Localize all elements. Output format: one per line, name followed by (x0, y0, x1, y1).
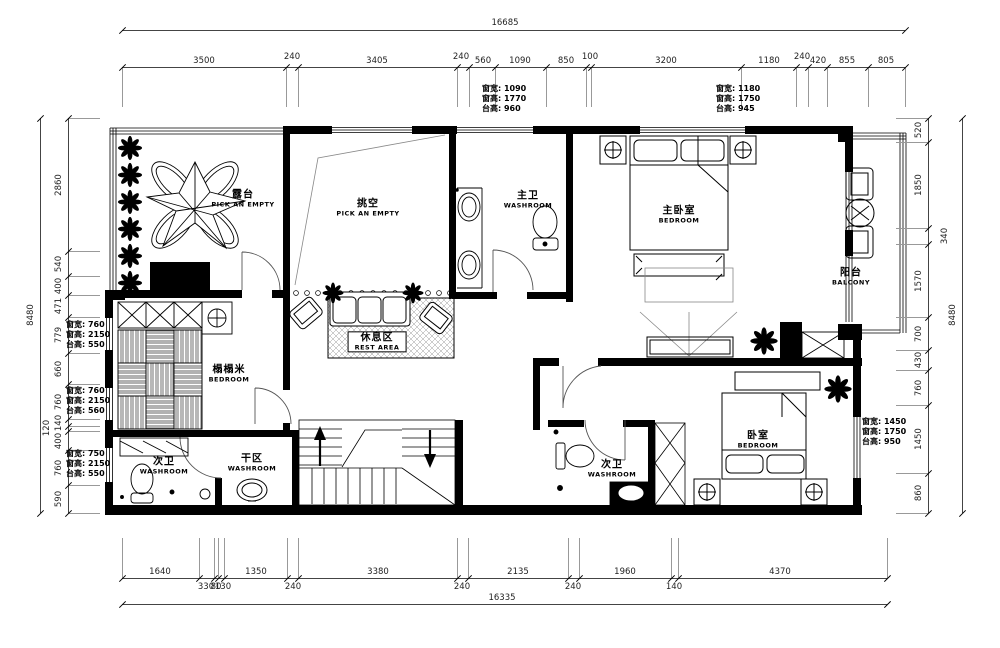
dim-top-segments-ext (827, 67, 828, 107)
room-name-en: REST AREA (355, 344, 400, 351)
dim-left-segments-ext (68, 485, 100, 486)
closet-hatch (655, 423, 685, 505)
dim-top-segments-ext (591, 67, 592, 107)
room-label: 卧室BEDROOM (738, 431, 779, 448)
room-name-cn: 卧室 (738, 431, 779, 442)
dim-top-segments-ext (122, 67, 123, 107)
dim-left-segments-ext (68, 419, 100, 420)
dim-label: 1180 (758, 56, 780, 66)
dim-label: 100 (582, 52, 598, 62)
room-name-cn: 干区 (228, 454, 277, 465)
dim-top-segments-ext (868, 67, 869, 107)
dim-label: 130 (215, 582, 231, 592)
room-label: 主卫WASHROOM (504, 191, 553, 208)
dry-area-sink (237, 479, 267, 501)
room-label: 干区WASHROOM (228, 454, 277, 471)
window-spec-line: 台高: 950 (862, 437, 906, 447)
room-name-cn: 挑空 (336, 199, 399, 210)
window-lines (107, 128, 861, 483)
dim-top-total-line (122, 30, 905, 31)
dim-top-segments-ext (286, 67, 287, 107)
window-spec: 窗宽: 1090窗高: 1770台高: 960 (482, 84, 526, 114)
dim-label: 4370 (769, 567, 791, 577)
window-spec-line: 窗宽: 760 (66, 320, 110, 330)
dim-label: 760 (914, 380, 924, 396)
dim-bottom-segments-ext (568, 538, 569, 578)
dim-label: 140 (666, 582, 682, 592)
dim-label: 400 (54, 433, 64, 449)
dim-bottom-segments-ext (122, 538, 123, 578)
dim-right-segments-ext (896, 142, 928, 143)
dim-label: 590 (54, 491, 64, 507)
window-spec-line: 窗高: 1770 (482, 94, 526, 104)
dim-label: 860 (914, 485, 924, 501)
stairs-down-arrowhead (424, 454, 436, 468)
dim-label: 1450 (914, 428, 924, 450)
room-name-en: WASHROOM (228, 465, 277, 472)
dim-top-segments-ext (586, 67, 587, 107)
dim-label: 1960 (614, 567, 636, 577)
dim-label: 240 (454, 582, 470, 592)
dim-label: 779 (54, 327, 64, 343)
room-label: 挑空PICK AN EMPTY (336, 199, 399, 216)
dim-label: 240 (285, 582, 301, 592)
dim-left-segments-ext (68, 431, 100, 432)
dim-label: 471 (54, 298, 64, 314)
dim-label: 760 (54, 460, 64, 476)
dim-bottom-segments-ext (678, 538, 679, 578)
dim-left-segments-ext (68, 317, 100, 318)
window-spec-line: 窗高: 1750 (716, 94, 760, 104)
dim-label: 760 (54, 394, 64, 410)
dim-right-segments-ext (896, 118, 928, 119)
room-label: 露台PICK AN EMPTY (211, 190, 274, 207)
walls (105, 126, 862, 515)
window-spec-line: 窗宽: 1090 (482, 84, 526, 94)
dim-label: 240 (565, 582, 581, 592)
window-spec-line: 台高: 945 (716, 104, 760, 114)
dim-top-segments-ext (457, 67, 458, 107)
window-spec-line: 窗高: 2150 (66, 330, 110, 340)
dim-right-segments-ext (896, 350, 928, 351)
room-name-cn: 次卫 (140, 457, 189, 468)
window-spec-line: 窗宽: 1450 (862, 417, 906, 427)
dim-label: 3200 (655, 56, 677, 66)
room-name-en: PICK AN EMPTY (211, 201, 274, 208)
dim-top-segments-ext (796, 67, 797, 107)
dim-right-segments-ext (896, 370, 928, 371)
room-name-cn: 休息区 (355, 333, 400, 344)
window-spec-line: 窗宽: 1180 (716, 84, 760, 94)
dim-top-segments-ext (808, 67, 809, 107)
room-label: 休息区REST AREA (348, 331, 407, 352)
window-spec-line: 窗高: 2150 (66, 396, 110, 406)
dim-left-segments-ext (68, 426, 100, 427)
window-spec: 窗宽: 1450窗高: 1750台高: 950 (862, 417, 906, 447)
window-spec-line: 台高: 550 (66, 340, 110, 350)
dim-bottom-segments-line (122, 578, 887, 579)
dim-label: 2860 (54, 174, 64, 196)
dim-label: 16335 (488, 593, 515, 603)
room-name-cn: 主卧室 (659, 206, 700, 217)
master-tv-cabinet (647, 337, 733, 357)
room-name-en: WASHROOM (140, 468, 189, 475)
dim-bottom-segments-ext (287, 538, 288, 578)
room-name-en: PICK AN EMPTY (336, 210, 399, 217)
dim-label: 1570 (914, 270, 924, 292)
dim-label: 1640 (149, 567, 171, 577)
window-spec-line: 窗高: 2150 (66, 459, 110, 469)
dim-left-segments-ext (68, 251, 100, 252)
dim-bottom-total-line (122, 604, 887, 605)
dim-label: 1090 (509, 56, 531, 66)
dim-label: 3500 (193, 56, 215, 66)
dim-bottom-segments-ext (579, 538, 580, 578)
dim-label: 8480 (26, 304, 36, 326)
room-name-cn: 榻榻米 (209, 365, 250, 376)
balcony-railing (853, 133, 906, 333)
master-wardrobe (802, 332, 844, 358)
dim-label: 400 (54, 278, 64, 294)
dim-right-segments-ext (896, 244, 928, 245)
dim-label: 700 (914, 326, 924, 342)
dim-top-segments-ext (546, 67, 547, 107)
dim-label: 120 (42, 420, 52, 436)
dim-label: 240 (794, 52, 810, 62)
room-label: 阳台BALCONY (832, 268, 870, 285)
dim-right-segments-ext (896, 405, 928, 406)
tatami-wardrobe (118, 302, 232, 334)
dim-top-segments-ext (298, 67, 299, 107)
dim-bottom-segments-ext (468, 538, 469, 578)
dim-label: 1350 (245, 567, 267, 577)
dim-bottom-segments-ext (298, 538, 299, 578)
dim-bottom-segments-ext (218, 538, 219, 578)
dim-right-segments-ext (896, 228, 928, 229)
stairs-up-arrowhead (314, 426, 326, 440)
dim-label: 2135 (507, 567, 529, 577)
dim-label: 8480 (948, 304, 958, 326)
dim-top-segments-line (122, 67, 905, 68)
dim-label: 540 (54, 256, 64, 272)
room-name-cn: 主卫 (504, 191, 553, 202)
room-label: 榻榻米BEDROOM (209, 365, 250, 382)
window-spec: 窗宽: 760窗高: 2150台高: 560 (66, 386, 110, 416)
dim-label: 520 (914, 122, 924, 138)
dim-bottom-segments-ext (199, 538, 200, 578)
window-spec-line: 窗高: 1750 (862, 427, 906, 437)
dim-label: 240 (284, 52, 300, 62)
window-spec-line: 台高: 960 (482, 104, 526, 114)
dim-label: 420 (810, 56, 826, 66)
dim-left-total-line (40, 118, 41, 513)
dim-bottom-segments-ext (887, 538, 888, 578)
stairs (299, 420, 455, 505)
window-spec-line: 台高: 560 (66, 406, 110, 416)
dim-right-total-line (962, 118, 963, 513)
room-label: 次卫WASHROOM (140, 457, 189, 474)
dim-right-segments-ext (896, 473, 928, 474)
dim-bottom-segments-ext (214, 538, 215, 578)
dim-left-segments-ext (68, 384, 100, 385)
dim-left-segments-ext (68, 353, 100, 354)
rest-area-sofa (330, 292, 410, 326)
dim-label: 3405 (366, 56, 388, 66)
dim-label: 1850 (914, 174, 924, 196)
dim-label: 560 (475, 56, 491, 66)
window-spec: 窗宽: 1180窗高: 1750台高: 945 (716, 84, 760, 114)
room-name-en: BEDROOM (738, 442, 779, 449)
dim-label: 16685 (491, 18, 518, 28)
dim-bottom-segments-ext (224, 538, 225, 578)
dim-label: 340 (940, 228, 950, 244)
room-name-en: BALCONY (832, 279, 870, 286)
tatami-mats (118, 330, 202, 429)
dim-label: 660 (54, 361, 64, 377)
room-label: 主卧室BEDROOM (659, 206, 700, 223)
floor-plan-canvas: 露台PICK AN EMPTY挑空PICK AN EMPTY主卫WASHROOM… (0, 0, 1000, 648)
room-name-cn: 次卫 (588, 460, 637, 471)
window-spec-line: 窗宽: 760 (66, 386, 110, 396)
dim-label: 240 (453, 52, 469, 62)
window-spec: 窗宽: 760窗高: 2150台高: 550 (66, 320, 110, 350)
dim-label: 3380 (367, 567, 389, 577)
room-name-en: WASHROOM (588, 471, 637, 478)
dim-label: 805 (878, 56, 894, 66)
dim-bottom-segments-ext (671, 538, 672, 578)
room-label: 次卫WASHROOM (588, 460, 637, 477)
dim-label: 430 (914, 352, 924, 368)
window-spec: 窗宽: 750窗高: 2150台高: 550 (66, 449, 110, 479)
window-spec-line: 窗宽: 750 (66, 449, 110, 459)
room-name-cn: 露台 (211, 190, 274, 201)
dim-top-segments-ext (469, 67, 470, 107)
room-name-en: WASHROOM (504, 202, 553, 209)
dim-label: 140 (54, 415, 64, 431)
dim-label: 850 (558, 56, 574, 66)
dim-right-segments-ext (896, 513, 928, 514)
dim-left-segments-ext (68, 513, 100, 514)
window-spec-line: 台高: 550 (66, 469, 110, 479)
room-name-en: BEDROOM (209, 376, 250, 383)
dim-bottom-segments-ext (457, 538, 458, 578)
dim-left-segments-ext (68, 276, 100, 277)
dim-left-segments-ext (68, 118, 100, 119)
room-name-en: BEDROOM (659, 217, 700, 224)
master-tv-area (640, 268, 737, 356)
dim-left-segments-ext (68, 295, 100, 296)
dim-top-segments-ext (905, 67, 906, 107)
room-name-cn: 阳台 (832, 268, 870, 279)
dim-label: 855 (839, 56, 855, 66)
dim-right-segments-ext (896, 317, 928, 318)
